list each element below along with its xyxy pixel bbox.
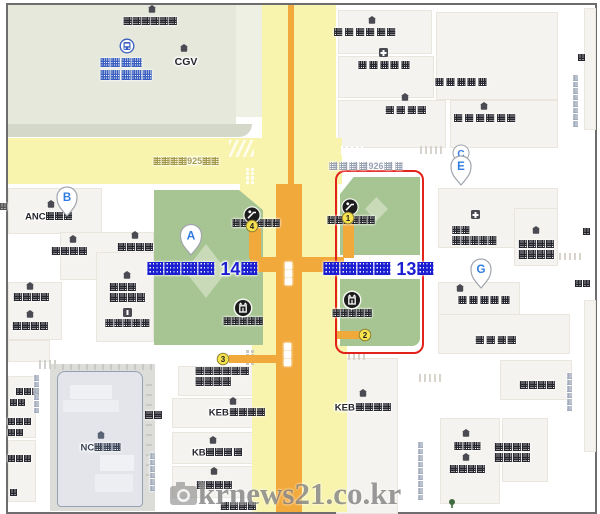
svg-text:1: 1 xyxy=(346,214,351,223)
svg-text:B: B xyxy=(63,192,71,204)
svg-text:A: A xyxy=(187,228,196,242)
svg-text:3: 3 xyxy=(221,355,226,364)
svg-text:4: 4 xyxy=(250,222,255,231)
svg-text:E: E xyxy=(457,161,465,173)
svg-text:G: G xyxy=(477,264,486,276)
svg-text:2: 2 xyxy=(363,331,368,340)
